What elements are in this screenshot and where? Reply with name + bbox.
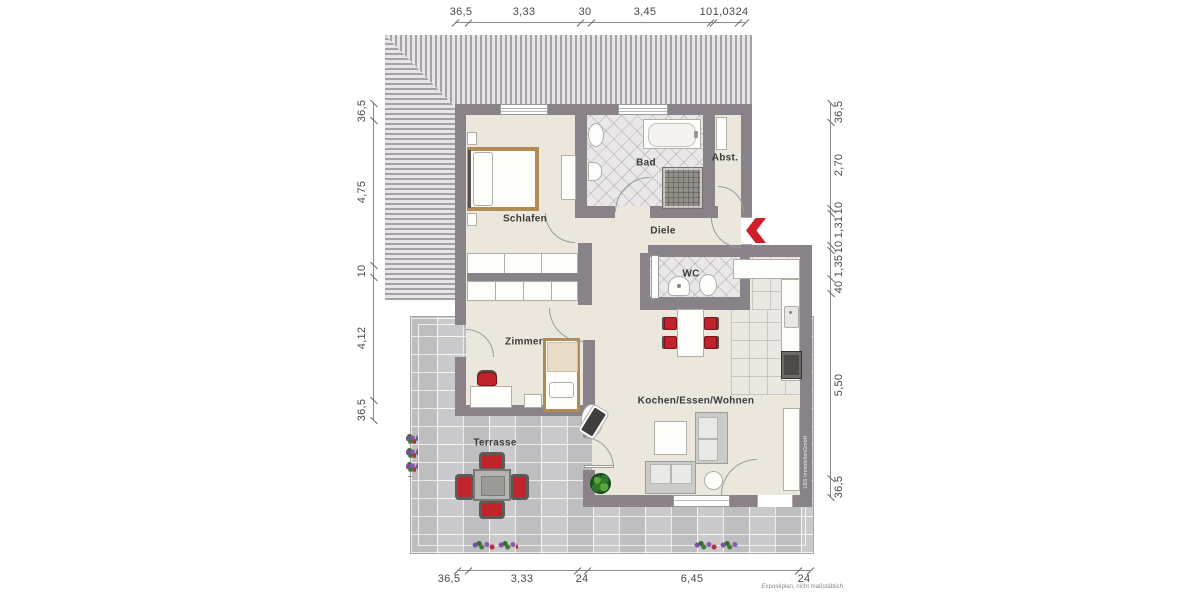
dim-label: 3,45	[634, 6, 657, 18]
sofa-horizontal	[645, 461, 696, 494]
room-label-diele: Diele	[650, 226, 675, 237]
dim-label: 30	[579, 6, 592, 18]
dim-label: 1,03	[713, 6, 736, 18]
bed-pillow	[549, 382, 574, 398]
faucet-icon	[694, 131, 698, 138]
room-label-wohnen: Kochen/Essen/Wohnen	[638, 396, 755, 407]
dim-label: 36,5	[356, 100, 368, 123]
dresser	[561, 155, 576, 200]
shower	[662, 167, 703, 209]
wall-segment	[575, 115, 587, 213]
kitchen-counter-top	[733, 259, 800, 279]
dim-label: 4,12	[356, 327, 368, 350]
wall-segment	[575, 206, 615, 218]
watermark: LBS ImmobilienGmbH	[803, 435, 809, 488]
dining-table	[677, 309, 704, 357]
dim-label: 2,70	[833, 154, 845, 177]
terrace-chair	[510, 474, 529, 500]
window	[500, 104, 548, 115]
dim-label: 5,50	[833, 374, 845, 397]
wardrobe-row	[467, 281, 578, 301]
wc-sink-drain	[677, 284, 681, 288]
desk	[470, 386, 512, 408]
wall-segment	[455, 104, 466, 325]
dim-label: 10	[833, 202, 845, 215]
dim-label: 6,45	[681, 573, 704, 585]
dining-chair	[664, 336, 677, 349]
dim-label: 36,5	[356, 399, 368, 422]
bathroom-sink	[588, 123, 604, 147]
storage-shelf	[716, 117, 727, 150]
coffee-table	[654, 421, 687, 455]
desk-cabinet	[524, 394, 542, 408]
wall-segment	[703, 206, 718, 218]
flowers	[692, 541, 738, 551]
terrace-chair	[479, 500, 505, 519]
dim-label: 1,35	[833, 255, 845, 278]
room-label-wc: WC	[682, 269, 699, 280]
flowers	[406, 433, 418, 477]
wall-segment	[741, 104, 752, 217]
window	[673, 495, 730, 507]
dim-label: 36,5	[450, 6, 473, 18]
cooktop	[781, 351, 802, 379]
sideboard	[783, 408, 800, 491]
wall-segment	[648, 245, 812, 257]
dim-label: 10	[833, 241, 845, 254]
floorplan-canvas: Schlafen Bad Abst. Diele WC Zimmer Koche…	[0, 0, 1200, 600]
dim-label: 24	[736, 6, 749, 18]
terrace-chair	[455, 474, 474, 500]
kitchen-sink-drain	[789, 311, 792, 314]
dim-label: 36,5	[833, 476, 845, 499]
room-label-schlafen: Schlafen	[503, 214, 547, 225]
dim-label: 3,33	[511, 573, 534, 585]
dim-line-right	[830, 103, 831, 497]
dim-label: 36,5	[438, 573, 461, 585]
room-label-terrasse: Terrasse	[473, 438, 516, 449]
room-label-abst: Abst.	[712, 153, 739, 164]
dim-label: 24	[576, 573, 589, 585]
dim-label: 40	[833, 281, 845, 294]
flowers	[470, 541, 518, 551]
door-threshold	[757, 495, 793, 507]
pillow	[473, 152, 493, 206]
dim-label: 4,75	[356, 181, 368, 204]
room-label-zimmer: Zimmer	[505, 337, 543, 348]
wardrobe-row	[467, 253, 578, 274]
nightstand	[467, 213, 477, 226]
dining-chair	[704, 317, 717, 330]
bed-blanket	[547, 342, 578, 372]
dim-line-top	[455, 22, 745, 23]
side-table-round	[704, 471, 723, 490]
desk-chair	[477, 372, 497, 386]
nightstand	[467, 132, 477, 145]
dining-chair	[664, 317, 677, 330]
terrace-table-top	[481, 476, 505, 496]
dim-label: 1,31	[833, 216, 845, 239]
wall-segment	[583, 340, 595, 408]
wall-segment	[578, 243, 592, 305]
dim-line-left	[373, 103, 374, 420]
dim-label: 10	[700, 6, 713, 18]
window	[618, 104, 668, 115]
dim-label: 10	[356, 265, 368, 278]
dim-label: 36,5	[833, 101, 845, 124]
wc-toilet	[699, 274, 717, 296]
door-leaf-living-terrace	[584, 465, 614, 468]
toilet	[588, 162, 602, 181]
bed-headboard	[468, 150, 471, 208]
room-label-bad: Bad	[636, 158, 656, 169]
wc-door-leaf	[651, 255, 659, 299]
dim-line-bottom	[457, 570, 810, 571]
plant	[590, 473, 611, 494]
bathtub-basin	[648, 123, 696, 147]
dim-label: 3,33	[513, 6, 536, 18]
sofa-vertical	[695, 412, 728, 464]
plan-note: Exposéplan, nicht maßstäblich	[762, 584, 843, 590]
kitchen-sink	[784, 306, 799, 328]
dining-chair	[704, 336, 717, 349]
